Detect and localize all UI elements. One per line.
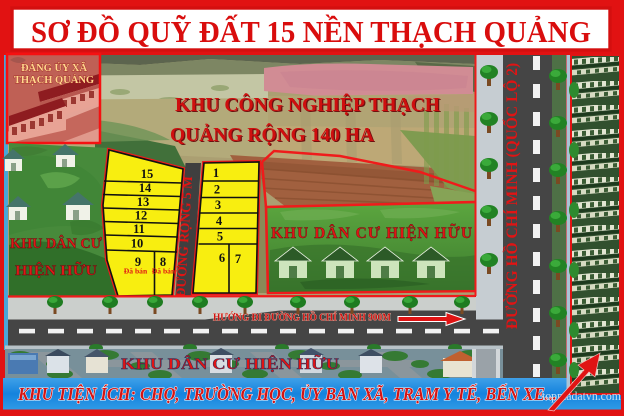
svg-text:SƠ ĐỒ QUỸ ĐẤT 15 NỀN THẠCH QUẢ: SƠ ĐỒ QUỸ ĐẤT 15 NỀN THẠCH QUẢNG xyxy=(31,13,591,49)
svg-text:13: 13 xyxy=(137,195,150,209)
svg-text:THẠCH QUẢNG: THẠCH QUẢNG xyxy=(14,74,94,86)
svg-text:15: 15 xyxy=(141,167,154,181)
svg-text:HƯỚNG ĐI ĐƯỜNG HỒ CHÍ MINH 900: HƯỚNG ĐI ĐƯỜNG HỒ CHÍ MINH 900M xyxy=(213,311,391,324)
svg-text:12: 12 xyxy=(135,209,148,223)
svg-text:QUẢNG RỘNG 140 HA: QUẢNG RỘNG 140 HA xyxy=(170,123,375,146)
svg-text:topmadatvn.com: topmadatvn.com xyxy=(542,388,621,403)
svg-text:14: 14 xyxy=(139,181,152,195)
svg-text:ĐẢNG ỦY XÃ: ĐẢNG ỦY XÃ xyxy=(21,62,88,74)
svg-text:6: 6 xyxy=(219,251,225,265)
svg-text:2: 2 xyxy=(214,183,220,197)
svg-text:KHU CÔNG NGHIỆP THẠCH: KHU CÔNG NGHIỆP THẠCH xyxy=(175,92,440,116)
svg-text:KHU DÂN CƯ: KHU DÂN CƯ xyxy=(10,235,102,252)
svg-text:HIỆN HỮU: HIỆN HỮU xyxy=(15,261,98,279)
svg-text:4: 4 xyxy=(216,214,223,228)
svg-text:10: 10 xyxy=(131,237,144,251)
svg-text:7: 7 xyxy=(235,252,241,266)
svg-text:3: 3 xyxy=(215,198,221,212)
svg-text:1: 1 xyxy=(213,166,219,180)
svg-text:KHU DÂN CƯ HIỆN HỮU: KHU DÂN CƯ HIỆN HỮU xyxy=(121,355,339,373)
svg-text:Đã bán: Đã bán xyxy=(152,267,176,276)
svg-text:11: 11 xyxy=(133,222,145,236)
svg-text:KHU TIỆN ÍCH: CHỢ, TRƯỜNG HỌC,: KHU TIỆN ÍCH: CHỢ, TRƯỜNG HỌC, ỦY BAN XÃ… xyxy=(17,384,557,404)
svg-text:5: 5 xyxy=(217,230,223,244)
svg-text:ĐƯỜNG HỒ CHÍ MINH (QUỐC LỘ 2): ĐƯỜNG HỒ CHÍ MINH (QUỐC LỘ 2) xyxy=(503,63,521,329)
svg-text:KHU DÂN CƯ HIỆN HỮU: KHU DÂN CƯ HIỆN HỮU xyxy=(271,224,473,242)
svg-text:Đã bán: Đã bán xyxy=(124,267,148,276)
